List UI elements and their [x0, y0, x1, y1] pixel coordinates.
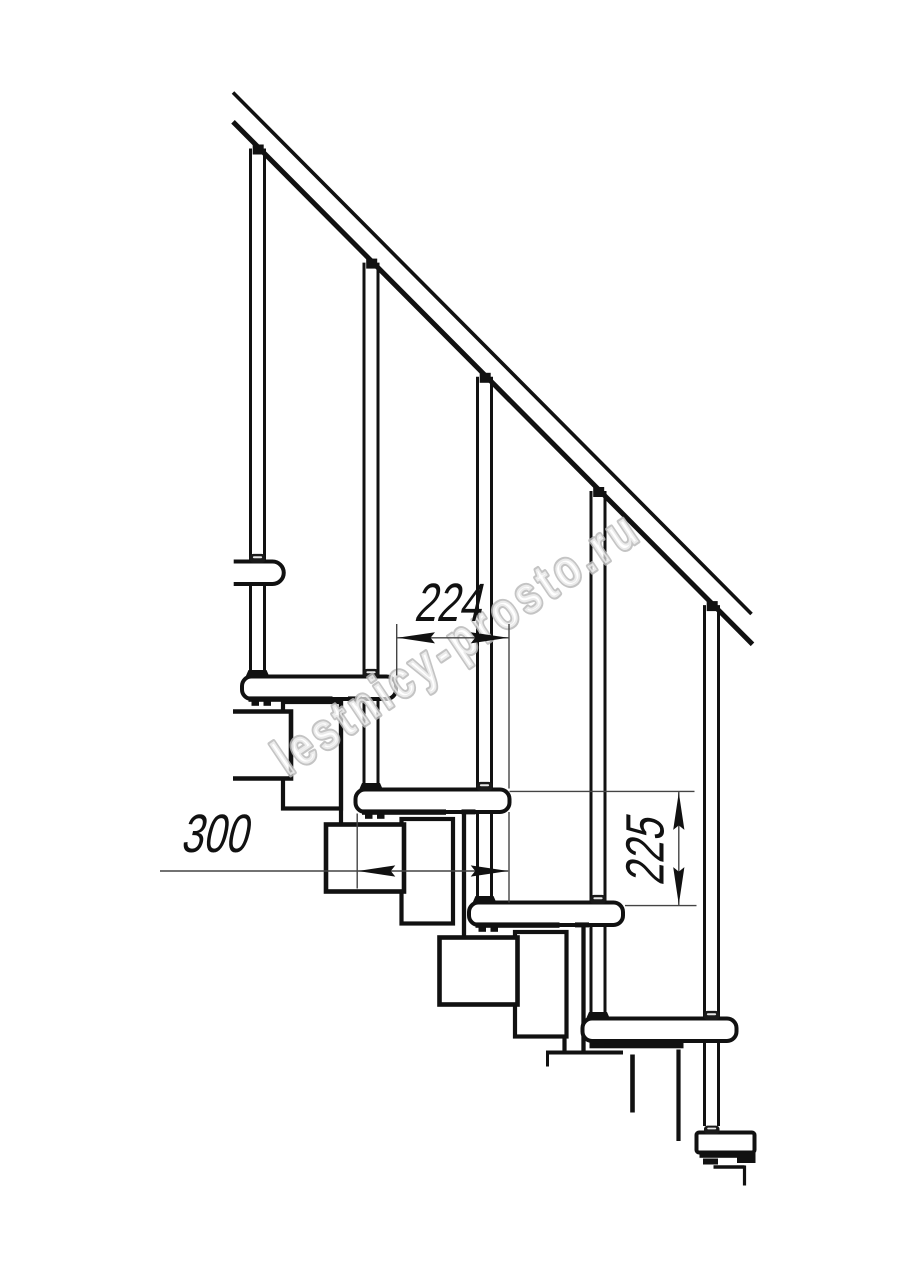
- svg-text:225: 225: [615, 808, 675, 889]
- svg-text:300: 300: [177, 804, 258, 864]
- svg-text:224: 224: [411, 573, 492, 633]
